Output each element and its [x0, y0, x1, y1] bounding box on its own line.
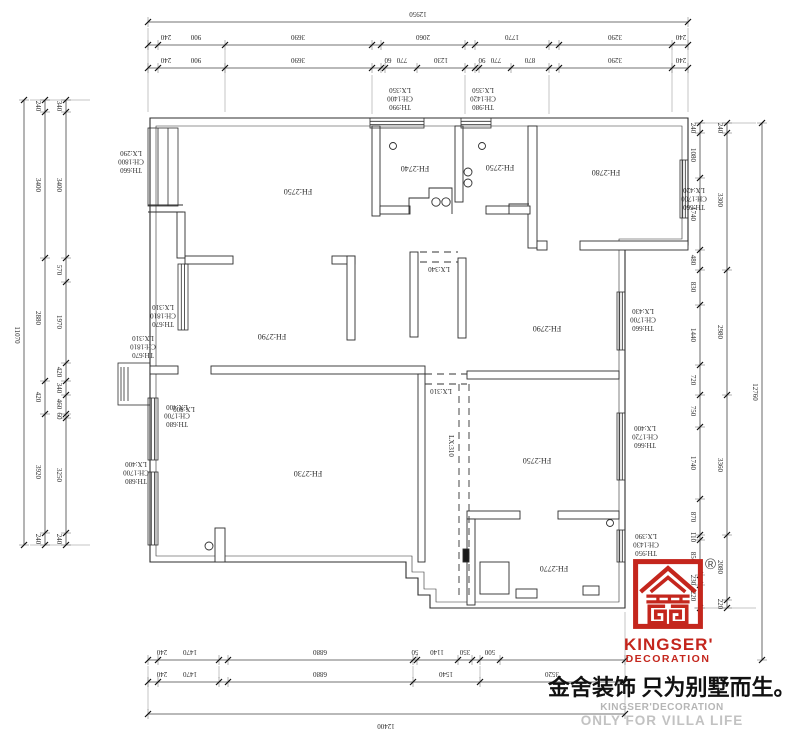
window-tag: TH:680CH:1700LX:400	[123, 460, 149, 485]
dimension-value: 3250	[55, 468, 63, 483]
dimension-value: 350	[459, 648, 470, 656]
dimension-value: 3690	[291, 33, 306, 41]
dimension-value: 12400	[377, 722, 395, 730]
dimension-value: 900	[190, 56, 201, 64]
opening-label: LX:800	[173, 405, 195, 413]
spiral-right	[671, 606, 687, 623]
window-tag: TH:660CH:1700LX:430	[630, 307, 656, 332]
room-label: FH:2750	[486, 163, 514, 172]
dimension-value: 3290	[608, 56, 623, 64]
window-tag: TH:660CH:1700LX:420	[681, 186, 707, 211]
dimension-value: 240	[156, 670, 167, 678]
window-tag-line: LX:290	[120, 149, 142, 157]
window-tag-line: TH:680	[166, 420, 188, 428]
window-tag: TH:660CH:1720LX:400	[632, 424, 658, 449]
dimension-value: 770	[396, 56, 407, 64]
dimension-value: 240	[160, 56, 171, 64]
dimension-value: 340	[55, 383, 63, 394]
dimension-value: 500	[484, 648, 495, 656]
light-icon	[205, 542, 213, 550]
vanity-counter	[409, 188, 452, 214]
logo-wordmark: KINGSER'	[624, 636, 712, 653]
dimension-value: 240	[675, 33, 686, 41]
dimension-value: 420	[34, 392, 42, 403]
dimension-value: 110	[689, 532, 697, 543]
dimension-value: 1140	[430, 648, 444, 656]
logo-wordmark-sub: DECORATION	[624, 653, 712, 665]
dimension-value: 90	[478, 56, 486, 64]
dimension-value: 60	[55, 413, 63, 421]
dimension-value: 6880	[313, 648, 328, 656]
kitchen-appliance	[516, 589, 537, 598]
dimension-value: 1540	[439, 670, 454, 678]
window-tag-line: TH:670	[132, 351, 154, 359]
opening-label: LX:310	[430, 387, 452, 395]
dimension-value: 3690	[291, 56, 306, 64]
dimension-value: 3400	[34, 178, 42, 193]
window-tag-line: LX:400	[634, 424, 656, 432]
opening-label: LX:310	[447, 435, 455, 457]
window-tag-line: CH:1800	[118, 158, 144, 166]
window-tag-line: CH:1700	[681, 195, 707, 203]
floorplan-canvas: 1295024090036902060177032902402409003690…	[0, 0, 800, 746]
window-tag: TH:980CH:1420LX:350	[470, 86, 496, 111]
window-tag-line: LX:390	[635, 532, 657, 540]
brand-subtitle-en-1: KINGSER'DECORATION	[534, 702, 790, 713]
dimension-value: 1970	[55, 315, 63, 330]
dimension-value: 1470	[183, 648, 198, 656]
dimension-value: 870	[689, 512, 697, 523]
dimension-value: 240	[716, 123, 724, 134]
window-tag-line: CH:1700	[123, 469, 149, 477]
dimension-value: 3290	[608, 33, 623, 41]
dimension-value: 2880	[34, 311, 42, 326]
sink-icon	[442, 198, 450, 206]
room-label: FH:2770	[540, 564, 568, 573]
windows	[118, 118, 688, 562]
window-tag-line: LX:310	[132, 334, 154, 342]
dimension-value: 2980	[716, 325, 724, 340]
kingser-logo: ® KINGSER' DECORATION	[624, 558, 712, 665]
dimension-value: 1740	[689, 456, 697, 471]
window-tag: TH:660CH:1800LX:290	[118, 149, 144, 174]
room-label: FH:2790	[258, 332, 286, 341]
window-tag-line: TH:950	[635, 549, 657, 557]
window-tag-line: TH:660	[683, 203, 705, 211]
dimension-value: 2060	[416, 33, 431, 41]
room-label: FH:2740	[401, 164, 429, 173]
dimension-value: 3360	[716, 458, 724, 473]
dimension-value: 420	[55, 367, 63, 378]
window-tag-line: TH:660	[634, 441, 656, 449]
window-tag-line: CH:1430	[633, 541, 659, 549]
room-label: FH:2780	[592, 168, 620, 177]
dimension-value: 720	[689, 375, 697, 386]
window-tag-line: CH:1700	[630, 316, 656, 324]
dimension-value: 3300	[716, 193, 724, 208]
spiral-left	[649, 606, 665, 623]
window-tag-line: LX:310	[152, 303, 174, 311]
dimension-value: 240	[34, 534, 42, 545]
ceiling-light-icon	[479, 143, 486, 150]
window-tag-line: CH:1810	[130, 343, 156, 351]
opening-label: LX:340	[428, 265, 450, 273]
light-icon	[607, 520, 614, 527]
dimension-value: 240	[160, 33, 171, 41]
dimension-value: 480	[689, 255, 697, 266]
window-tag-line: TH:990	[389, 103, 411, 111]
dimension-value: 900	[190, 33, 201, 41]
dimension-value: 1080	[689, 148, 697, 163]
window-tag-line: CH:1810	[150, 312, 176, 320]
dimension-value: 1230	[434, 56, 449, 64]
dimension-value: 1770	[505, 33, 520, 41]
dimension-value: 220	[716, 599, 724, 610]
dimension-value: 6880	[313, 670, 328, 678]
window-tag-line: TH:680	[125, 477, 147, 485]
room-label: FH:2790	[533, 324, 561, 333]
dimension-value: 750	[689, 406, 697, 417]
dimension-value: 240	[156, 648, 167, 656]
registered-mark: ®	[705, 556, 716, 573]
toilet-icon	[464, 179, 472, 187]
dimension-value: 870	[524, 56, 535, 64]
window-tag-line: LX:420	[683, 186, 705, 194]
kitchen-appliance	[583, 586, 599, 595]
dimension-value: 570	[55, 265, 63, 276]
dimension-value: 12950	[409, 10, 427, 18]
room-label: FH:2750	[523, 456, 551, 465]
room-label: FH:2750	[284, 187, 312, 196]
window-tag: TH:670CH:1810LX:310	[150, 303, 176, 328]
dimension-value: 50	[411, 648, 419, 656]
window-tag-line: TH:670	[152, 320, 174, 328]
window-tag-line: CH:1400	[387, 95, 413, 103]
dimension-value: 2080	[716, 560, 724, 575]
dimension-value: 11070	[13, 326, 21, 344]
door-hinge	[463, 549, 469, 562]
kingser-logo-mark	[631, 558, 705, 630]
dimension-value: 770	[490, 56, 501, 64]
window-tag: TH:990CH:1400LX:350	[387, 86, 413, 111]
room-label: FH:2730	[294, 469, 322, 478]
window-tag-line: CH:1420	[470, 95, 496, 103]
dimension-value: 1440	[689, 328, 697, 343]
ceiling-light-icon	[390, 143, 397, 150]
dimension-value: 3920	[34, 465, 42, 480]
window-tag-line: LX:350	[472, 86, 494, 94]
window-tag-line: TH:980	[472, 103, 494, 111]
dimension-value: 1470	[183, 670, 198, 678]
dimension-value: 240	[55, 534, 63, 545]
window-tag-line: CH:1720	[632, 433, 658, 441]
window-tag: TH:670CH:1810LX:310	[130, 334, 156, 359]
slogan-chinese: 金舍装饰 只为别墅而生。	[548, 670, 798, 702]
toilet-icon	[464, 168, 472, 176]
window-tag-line: LX:350	[389, 86, 411, 94]
dimension-value: 240	[675, 56, 686, 64]
dimension-value: 60	[384, 56, 392, 64]
dimension-value: 340	[55, 101, 63, 112]
window-tag-line: LX:400	[125, 460, 147, 468]
sink-icon	[432, 198, 440, 206]
dimension-value: 3400	[55, 178, 63, 193]
window-tag-line: LX:430	[632, 307, 654, 315]
window-tag-line: TH:660	[632, 324, 654, 332]
dimension-value: 460	[55, 399, 63, 410]
dimension-value: 12760	[751, 383, 759, 401]
dimension-value: 240	[34, 101, 42, 112]
window-tag-line: TH:660	[120, 166, 142, 174]
dimension-value: 830	[689, 282, 697, 293]
window-tag: TH:950CH:1430LX:390	[633, 532, 659, 557]
brand-subtitle-en-2: ONLY FOR VILLA LIFE	[534, 713, 790, 728]
dimension-value: 240	[689, 123, 697, 134]
kitchen-counter	[480, 562, 509, 594]
